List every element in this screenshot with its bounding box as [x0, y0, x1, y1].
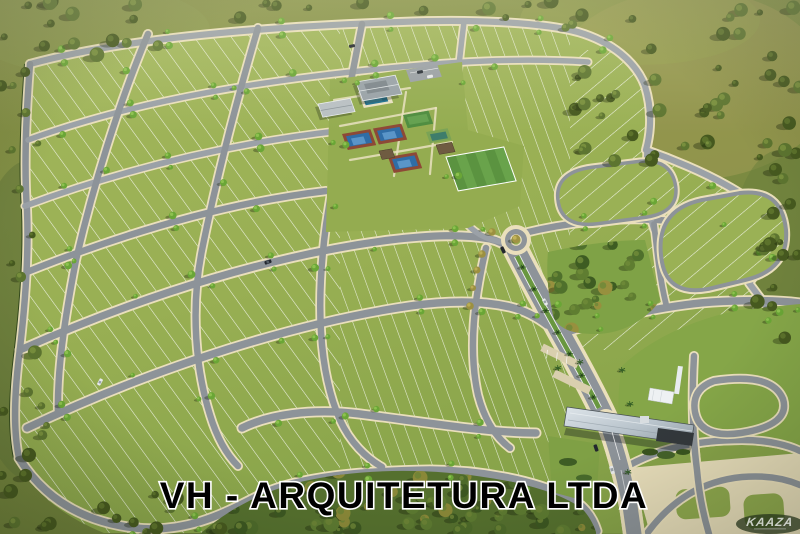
masterplan-render: VH - ARQUITETURA LTDA KAAZA [0, 0, 800, 534]
vignette [0, 0, 800, 534]
watermark-underline [754, 529, 786, 530]
watermark-text: KAAZA [746, 515, 795, 529]
rendering-canvas: VH - ARQUITETURA LTDA KAAZA [0, 0, 800, 534]
caption: VH - ARQUITETURA LTDA [160, 475, 648, 516]
